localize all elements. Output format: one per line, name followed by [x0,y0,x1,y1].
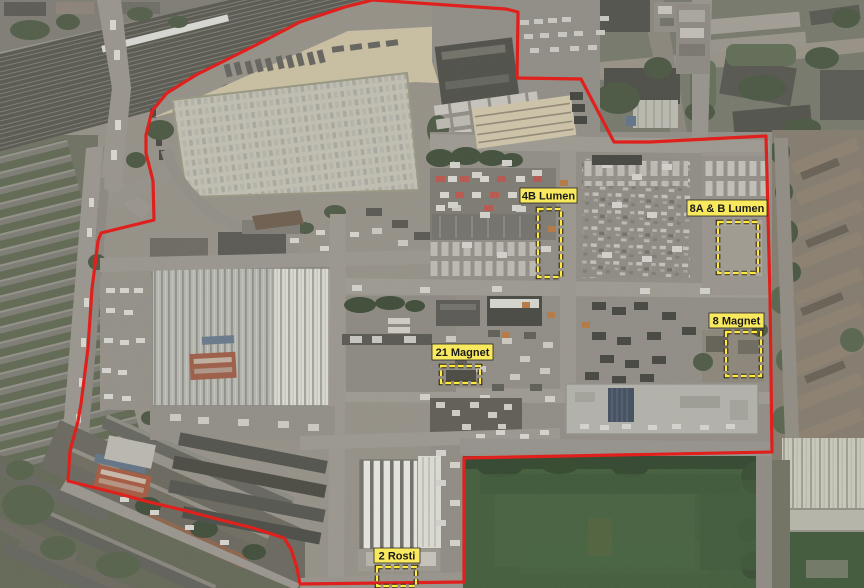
svg-text:21 Magnet: 21 Magnet [436,347,490,359]
svg-text:4B Lumen: 4B Lumen [522,191,575,203]
svg-text:2 Rosti: 2 Rosti [379,551,416,563]
svg-text:8 Magnet: 8 Magnet [713,316,761,328]
svg-text:8A & B Lumen: 8A & B Lumen [690,203,765,215]
